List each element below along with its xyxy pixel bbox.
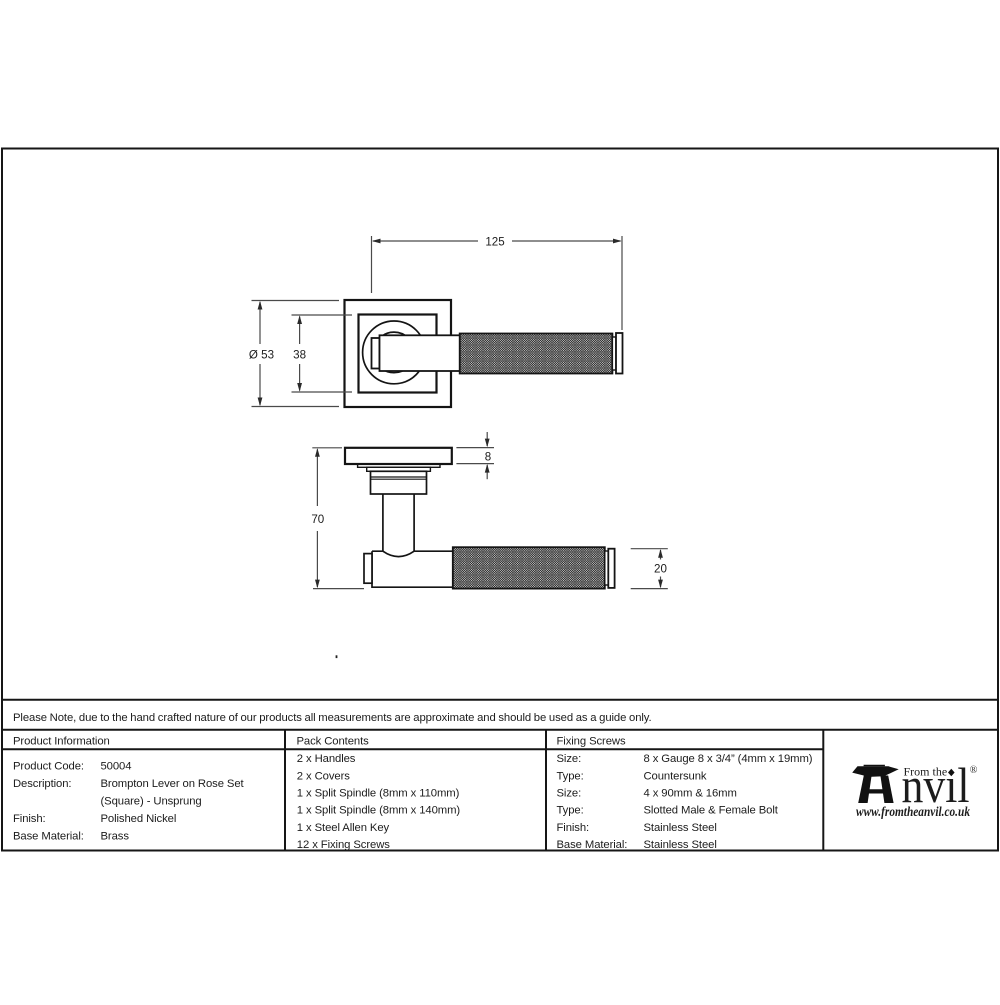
svg-text:Base Material:: Base Material: <box>13 831 84 843</box>
svg-text:Brass: Brass <box>101 831 130 843</box>
svg-text:Base Material:: Base Material: <box>557 839 628 851</box>
svg-text:1 x Split Spindle (8mm x 140mm: 1 x Split Spindle (8mm x 140mm) <box>297 805 461 817</box>
svg-text:8 x Gauge 8 x 3/4” (4mm x 19mm: 8 x Gauge 8 x 3/4” (4mm x 19mm) <box>644 753 813 765</box>
svg-text:Size:: Size: <box>557 753 582 765</box>
svg-text:1 x Split Spindle (8mm x 110mm: 1 x Split Spindle (8mm x 110mm) <box>297 788 460 800</box>
svg-text:Type:: Type: <box>557 805 584 817</box>
svg-text:(Square) - Unsprung: (Square) - Unsprung <box>101 796 202 808</box>
svg-text:Description:: Description: <box>13 778 71 790</box>
svg-text:Finish:: Finish: <box>557 822 590 834</box>
svg-text:70: 70 <box>311 513 324 526</box>
svg-text:Product Code:: Product Code: <box>13 761 84 773</box>
svg-text:20: 20 <box>654 562 667 575</box>
svg-text:Finish:: Finish: <box>13 813 46 825</box>
svg-text:Type:: Type: <box>557 770 584 782</box>
svg-text:Fixing Screws: Fixing Screws <box>557 735 626 747</box>
svg-text:Pack Contents: Pack Contents <box>297 735 370 747</box>
svg-text:12 x Fixing Screws: 12 x Fixing Screws <box>297 839 390 851</box>
svg-text:Stainless Steel: Stainless Steel <box>644 822 717 834</box>
svg-text:Slotted Male & Female Bolt: Slotted Male & Female Bolt <box>644 805 779 817</box>
svg-text:Stainless Steel: Stainless Steel <box>644 839 717 851</box>
svg-text:38: 38 <box>293 348 306 361</box>
svg-text:Brompton Lever on Rose Set: Brompton Lever on Rose Set <box>101 778 245 790</box>
svg-text:Countersunk: Countersunk <box>644 770 707 782</box>
svg-text:Product Information: Product Information <box>13 735 110 747</box>
svg-text:Size:: Size: <box>557 788 582 800</box>
svg-text:50004: 50004 <box>101 761 132 773</box>
svg-text:®: ® <box>970 765 978 776</box>
svg-text:2 x Covers: 2 x Covers <box>297 770 350 782</box>
svg-text:2 x Handles: 2 x Handles <box>297 753 356 765</box>
svg-text:1 x Steel Allen Key: 1 x Steel Allen Key <box>297 822 390 834</box>
svg-text:125: 125 <box>485 236 504 249</box>
svg-text:4 x 90mm & 16mm: 4 x 90mm & 16mm <box>644 788 737 800</box>
svg-text:Ø 53: Ø 53 <box>249 348 274 361</box>
svg-text:Please Note, due to the hand c: Please Note, due to the hand crafted nat… <box>13 712 652 724</box>
svg-text:Polished Nickel: Polished Nickel <box>101 813 177 825</box>
svg-text:www.fromtheanvil.co.uk: www.fromtheanvil.co.uk <box>856 804 970 819</box>
svg-text:8: 8 <box>485 450 491 463</box>
